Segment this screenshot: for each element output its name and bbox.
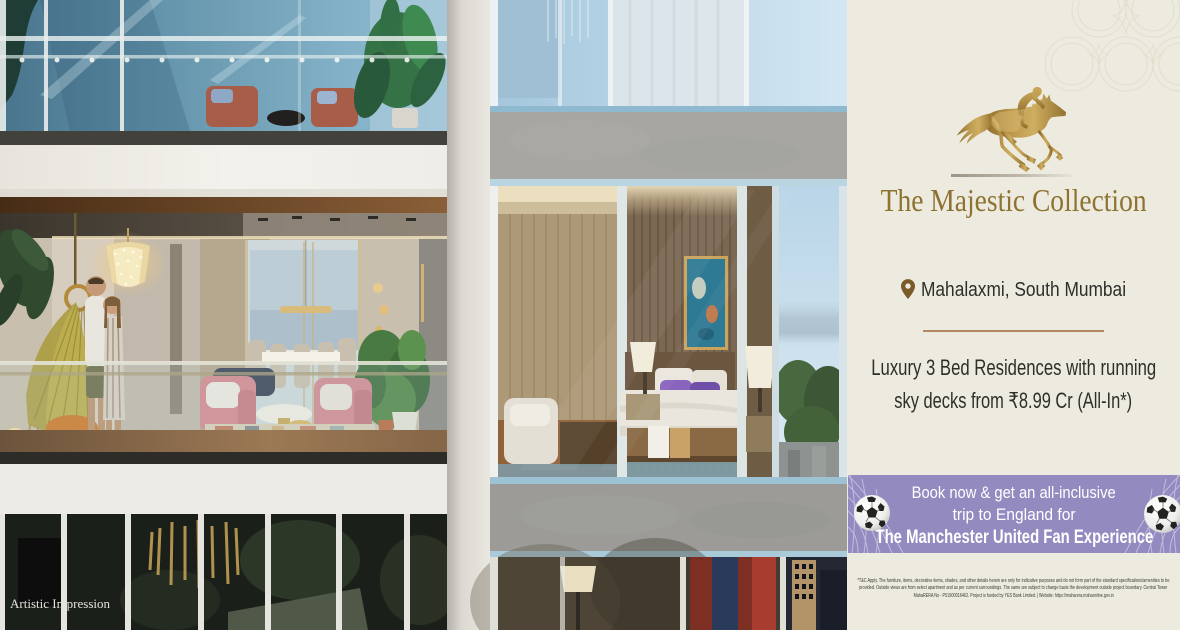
svg-text:Artistic Impression: Artistic Impression — [10, 596, 111, 611]
